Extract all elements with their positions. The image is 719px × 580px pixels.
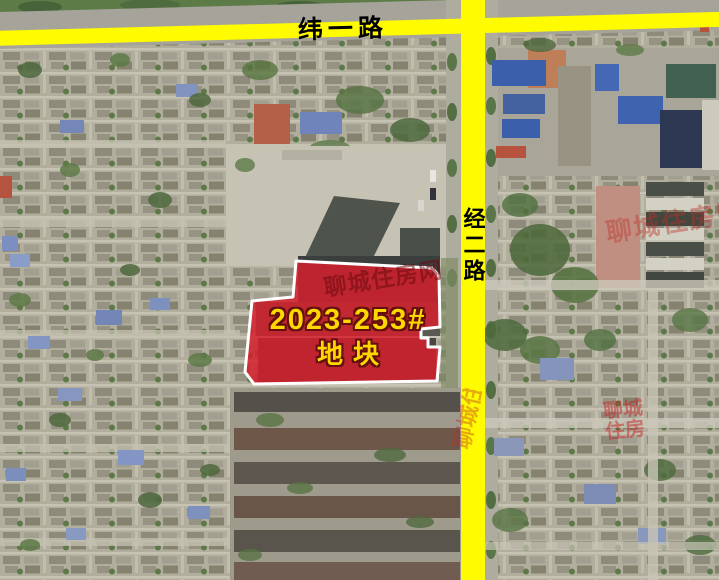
basemap-industrial-zone	[492, 26, 719, 176]
parcel-label-line2: 地块	[250, 341, 446, 367]
satellite-basemap	[0, 0, 719, 580]
parcel-label-line1: 2023-253#	[250, 306, 446, 335]
basemap-plaza	[226, 146, 446, 264]
annotated-satellite-map: 纬一路 经二路 聊城住房网 聊城住房网 聊城住房网 聊城住房网 2023-253…	[0, 0, 719, 580]
basemap-right-mid	[484, 182, 719, 303]
road-jingerlu: 经二路	[461, 0, 485, 580]
road-label-jingerlu: 经二路	[461, 207, 484, 285]
road-label-weiyilu: 纬一路	[298, 16, 389, 43]
basemap-apartment-rows	[230, 388, 462, 580]
